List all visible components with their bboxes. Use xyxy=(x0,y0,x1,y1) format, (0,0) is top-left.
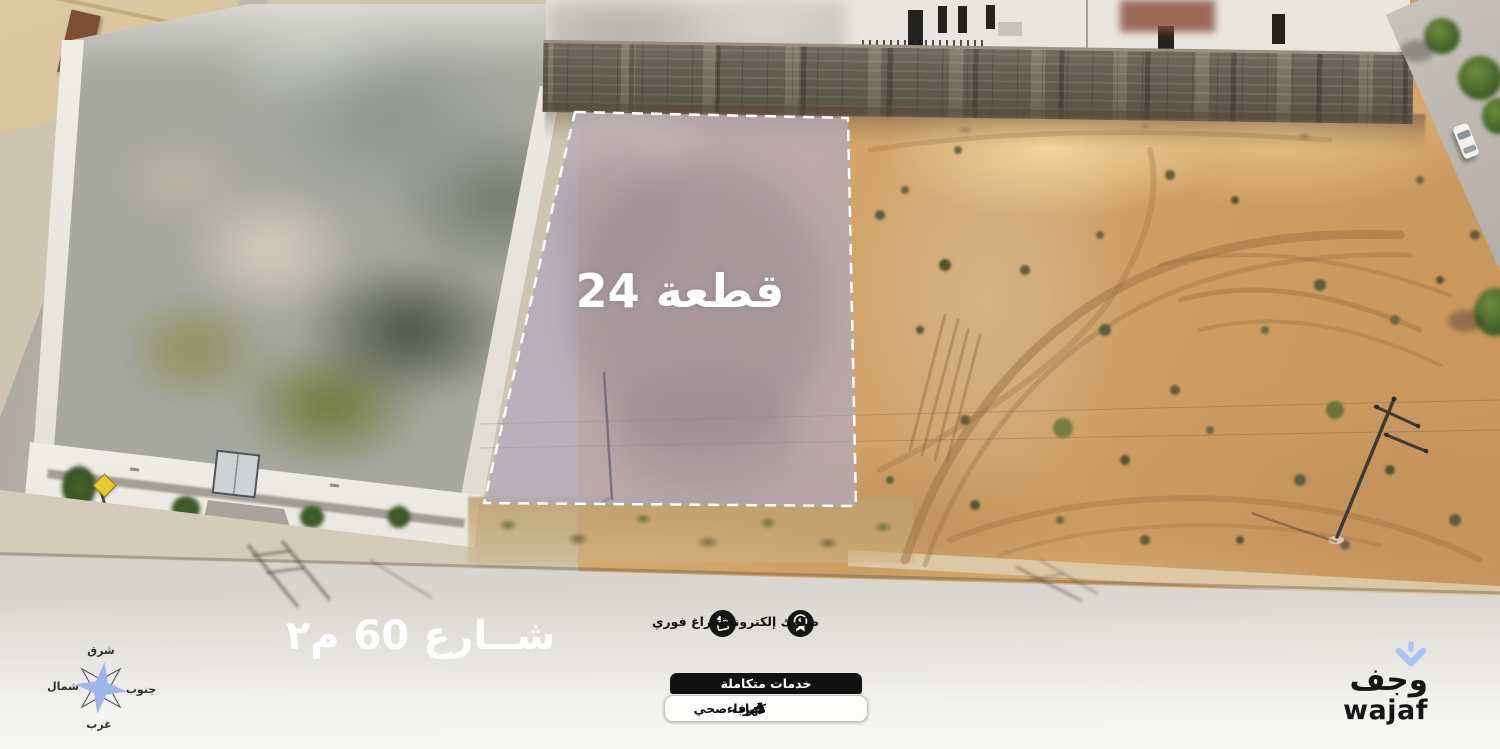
shrub xyxy=(388,506,410,528)
red-soil-patch xyxy=(1120,0,1215,32)
villa-window xyxy=(958,6,967,33)
service-label: صرف صحي xyxy=(694,701,766,716)
street-width-label: شــارع 60 م٢ xyxy=(248,613,593,659)
feature-label: إفراغ فوري xyxy=(652,614,724,629)
villa-window xyxy=(938,6,947,33)
plot-number-label: قطعة 24 xyxy=(560,264,800,318)
car-rear-window xyxy=(1462,144,1476,154)
compass-west-label: غرب xyxy=(79,718,119,731)
compass-north-label: شمال xyxy=(43,680,83,693)
compound-gate-door xyxy=(212,450,261,499)
compass-rose: شرق شمال جنوب غرب xyxy=(45,642,157,738)
services-title-bar: خدمات متكاملة xyxy=(670,673,862,694)
compass-east-label: شرق xyxy=(81,644,121,657)
tree xyxy=(1458,56,1500,100)
brand-name-latin: wajaf xyxy=(1336,697,1428,724)
tree-shadow xyxy=(1400,40,1434,62)
tree-shadow xyxy=(1448,310,1484,332)
feature-label: صكوك إلكترونية xyxy=(722,614,819,629)
services-panel: مــاء كهرباء صرف صحي xyxy=(664,695,868,722)
villa-window xyxy=(1272,14,1285,44)
brand-name-arabic: وجف xyxy=(1336,665,1428,696)
compass-south-label: جنوب xyxy=(121,683,161,696)
aerial-photo-scene: قطعة 24 شــارع 60 م٢ شرق شمال جنوب غرب إ… xyxy=(0,0,1500,749)
villa-window xyxy=(986,5,995,29)
car-windshield xyxy=(1456,129,1471,140)
roof-ac-unit xyxy=(998,22,1022,36)
brand-logo: وجف wajaf xyxy=(1336,641,1432,733)
scrub-strip xyxy=(468,497,913,563)
shrub xyxy=(300,506,324,528)
